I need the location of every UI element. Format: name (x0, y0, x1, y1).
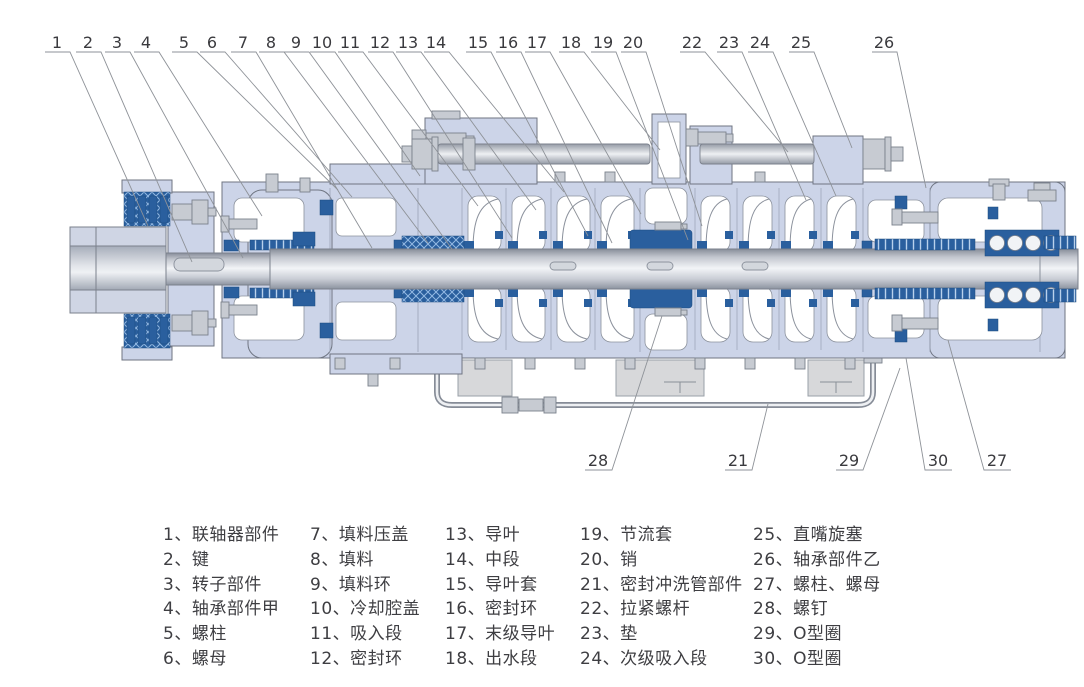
callout-leader-18 (559, 52, 660, 150)
tie-rod-nut (863, 139, 885, 169)
diagram-canvas: 1234567891011121314151617181920222324252… (0, 0, 1084, 687)
callout-number-16: 16 (498, 33, 518, 52)
callout-number-10: 10 (312, 33, 332, 52)
callout-number-23: 23 (719, 33, 739, 52)
callout-number-21: 21 (728, 451, 748, 470)
callout-number-8: 8 (266, 33, 276, 52)
callout-number-22: 22 (682, 33, 702, 52)
callout-number-25: 25 (791, 33, 811, 52)
pump-cross-section-figure: 1234567891011121314151617181920222324252… (0, 0, 1084, 687)
callout-number-6: 6 (207, 33, 217, 52)
callout-number-20: 20 (623, 33, 643, 52)
callout-number-18: 18 (561, 33, 581, 52)
tie-rod-nut (412, 139, 432, 169)
callout-number-13: 13 (398, 33, 418, 52)
callout-number-2: 2 (83, 33, 93, 52)
callout-number-30: 30 (928, 451, 948, 470)
callout-number-1: 1 (52, 33, 62, 52)
keyway (174, 258, 224, 271)
callout-number-3: 3 (112, 33, 122, 52)
callout-number-14: 14 (426, 33, 446, 52)
callout-number-15: 15 (468, 33, 488, 52)
callout-number-29: 29 (839, 451, 859, 470)
tie-rod-right (700, 144, 814, 164)
callout-number-9: 9 (291, 33, 301, 52)
callout-number-4: 4 (141, 33, 151, 52)
callout-number-27: 27 (987, 451, 1007, 470)
callout-number-12: 12 (370, 33, 390, 52)
callout-leader-5 (172, 52, 338, 190)
callout-number-11: 11 (340, 33, 360, 52)
callout-leader-25 (789, 52, 852, 148)
callout-number-24: 24 (750, 33, 770, 52)
callout-number-19: 19 (593, 33, 613, 52)
pump-shaft (270, 249, 1078, 289)
shaft-locknut (1044, 236, 1076, 249)
callout-number-17: 17 (527, 33, 547, 52)
callout-number-7: 7 (238, 33, 248, 52)
callout-number-28: 28 (588, 451, 608, 470)
drum-pin (655, 222, 681, 230)
callout-number-26: 26 (874, 33, 894, 52)
callout-number-5: 5 (179, 33, 189, 52)
